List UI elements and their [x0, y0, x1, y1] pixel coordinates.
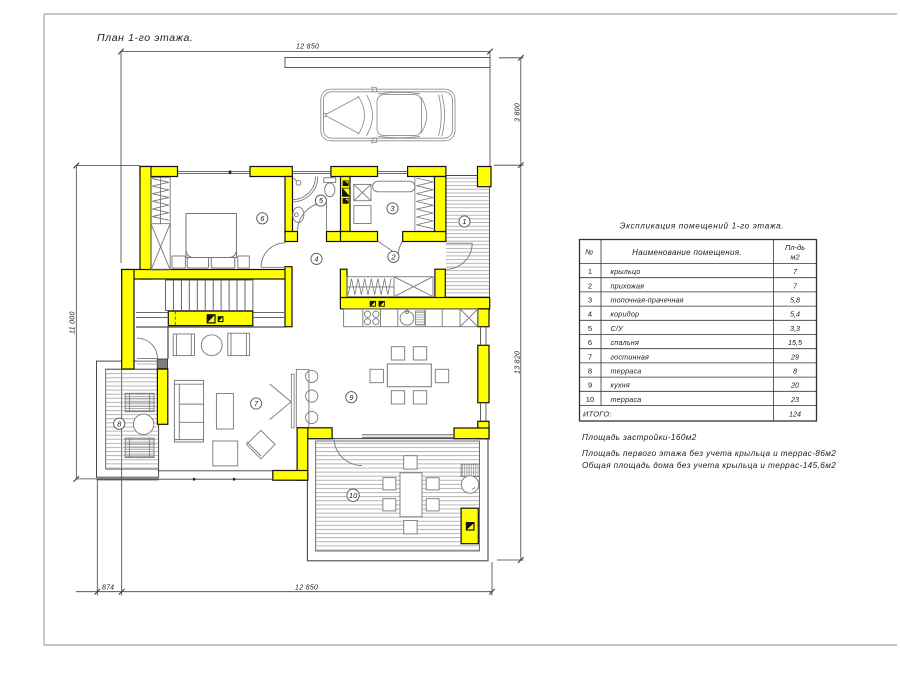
svg-text:Площадь первого этажа без учет: Площадь первого этажа без учета крыльца … — [582, 449, 836, 458]
svg-text:13 820: 13 820 — [515, 351, 522, 374]
svg-text:8: 8 — [793, 367, 797, 376]
svg-text:4: 4 — [314, 255, 318, 264]
svg-text:крыльцо: крыльцо — [611, 267, 641, 276]
svg-text:1: 1 — [462, 217, 466, 226]
svg-text:коридор: коридор — [611, 310, 640, 319]
svg-text:спальня: спальня — [611, 338, 640, 347]
svg-text:м2: м2 — [790, 253, 799, 262]
svg-text:5,4: 5,4 — [790, 310, 800, 319]
svg-text:5,8: 5,8 — [790, 296, 800, 305]
svg-text:8: 8 — [588, 367, 592, 376]
svg-text:124: 124 — [789, 410, 801, 419]
svg-text:2: 2 — [588, 281, 592, 290]
svg-text:10: 10 — [586, 395, 594, 404]
svg-text:С/У: С/У — [611, 324, 625, 333]
svg-text:Площадь застройки-160м2: Площадь застройки-160м2 — [582, 433, 697, 442]
svg-text:7: 7 — [588, 352, 592, 361]
svg-text:3,3: 3,3 — [790, 324, 800, 333]
svg-text:4: 4 — [588, 310, 592, 319]
svg-text:ИТОГО:: ИТОГО: — [583, 410, 612, 419]
svg-text:гостинная: гостинная — [611, 352, 650, 361]
svg-text:12 850: 12 850 — [296, 44, 319, 51]
svg-text:11 000: 11 000 — [70, 311, 77, 334]
svg-text:5: 5 — [588, 324, 592, 333]
svg-text:1: 1 — [588, 267, 592, 276]
svg-text:3 800: 3 800 — [515, 103, 522, 122]
svg-text:23: 23 — [790, 395, 799, 404]
svg-text:6: 6 — [588, 338, 592, 347]
svg-text:15,5: 15,5 — [788, 338, 803, 347]
svg-text:Общая площадь дома без учета к: Общая площадь дома без учета крыльца и т… — [582, 461, 836, 470]
svg-text:29: 29 — [790, 352, 799, 361]
svg-text:9: 9 — [588, 381, 592, 390]
svg-text:План 1-го этажа.: План 1-го этажа. — [97, 32, 193, 44]
svg-text:2: 2 — [390, 252, 396, 261]
svg-text:Экспликация помещений 1-го эта: Экспликация помещений 1-го этажа. — [620, 222, 784, 231]
svg-text:кухня: кухня — [611, 381, 630, 390]
svg-text:12 850: 12 850 — [295, 585, 318, 592]
svg-text:терраса: терраса — [611, 395, 642, 404]
svg-text:Пл-дь: Пл-дь — [785, 243, 805, 252]
svg-text:топочная-прачечная: топочная-прачечная — [611, 296, 684, 305]
svg-text:3: 3 — [588, 296, 592, 305]
svg-text:10: 10 — [349, 491, 358, 500]
svg-text:№: № — [585, 248, 593, 257]
svg-text:прихожая: прихожая — [611, 281, 645, 290]
svg-text:874: 874 — [102, 585, 114, 592]
svg-text:терраса: терраса — [611, 367, 642, 376]
svg-text:Наименование помещения.: Наименование помещения. — [632, 248, 742, 257]
svg-text:20: 20 — [790, 381, 799, 390]
